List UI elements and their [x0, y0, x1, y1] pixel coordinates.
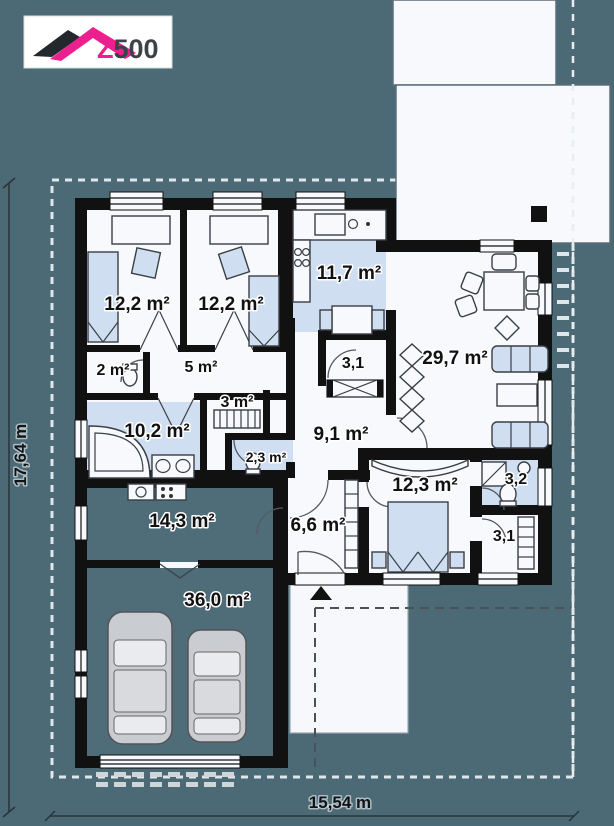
window-utility-west	[75, 506, 87, 540]
room-label-garage: 36,0 m²	[184, 590, 249, 611]
room-label-bedroom-3: 12,3 m²	[392, 475, 457, 496]
garage-door	[100, 755, 240, 768]
window-bedroom3	[383, 573, 440, 585]
room-label-wardrobe-small: 3 m²	[221, 394, 254, 411]
room-label-pantry: 3,1	[342, 355, 364, 372]
car-2	[188, 630, 246, 742]
window-top-1	[110, 192, 163, 210]
nightstand-1	[372, 552, 386, 568]
window-bathroom2	[538, 468, 552, 506]
dim-label-width: 15,54 m	[309, 793, 371, 812]
window-east-dining	[538, 283, 552, 315]
room-label-corridor: 9,1 m²	[314, 424, 369, 445]
roof-rect-upper	[393, 0, 556, 85]
chimney-square	[531, 206, 547, 222]
nightstand-2	[450, 552, 464, 568]
boiler-stove	[156, 484, 186, 500]
window-top-kitchen	[296, 192, 345, 210]
kitchen-chair-right	[372, 310, 384, 330]
kitchen-table	[332, 306, 372, 334]
window-living-top	[480, 240, 514, 252]
room-label-bathroom: 10,2 m²	[124, 421, 189, 442]
roof-rect-lower	[396, 85, 610, 243]
kitchen-sink	[315, 214, 345, 235]
room-label-wc: 2,3 m²	[246, 449, 287, 465]
desk-1	[112, 216, 170, 244]
room-label-utility: 14,3 m²	[149, 511, 214, 532]
chair-1	[132, 248, 161, 278]
floor-plan-canvas: 12,2 m² 12,2 m² 11,7 m² 3,1 29,7 m² 2 m²…	[0, 0, 614, 826]
shower	[482, 462, 506, 486]
window-garage-west-2	[75, 676, 87, 698]
room-label-hall: 5 m²	[185, 359, 218, 376]
kitchen-chair-left	[320, 310, 332, 330]
window-wardrobe2	[478, 573, 518, 585]
z500-logo: Z500	[24, 16, 172, 68]
room-label-bedroom-1: 12,2 m²	[104, 294, 169, 315]
wardrobe-rail	[214, 410, 260, 428]
room-label-wc-small: 2 m²	[97, 362, 130, 379]
window-bathroom-west	[75, 420, 87, 458]
room-label-entrance-hall: 6,6 m²	[291, 515, 346, 536]
room-label-bathroom-2: 3,2	[505, 471, 527, 488]
corridor-cabinet	[327, 380, 383, 397]
floor-plan-page: 12,2 m² 12,2 m² 11,7 m² 3,1 29,7 m² 2 m²…	[0, 0, 614, 826]
coffee-table	[497, 384, 537, 406]
bed-3	[388, 502, 448, 572]
double-sink	[152, 455, 194, 478]
window-top-2	[213, 192, 262, 210]
wardrobe2-ladder	[518, 517, 534, 569]
car-1	[108, 612, 172, 744]
dim-label-height: 17,64 m	[11, 424, 30, 486]
room-label-bedroom-2: 12,2 m²	[198, 294, 263, 315]
desk-2	[210, 216, 268, 244]
room-label-living: 29,7 m²	[422, 348, 487, 369]
room-label-kitchen: 11,7 m²	[317, 263, 381, 284]
washer	[128, 484, 154, 500]
logo-text: Z500	[97, 34, 159, 64]
window-garage-west-1	[75, 650, 87, 672]
hall-wardrobe	[345, 480, 358, 568]
sofa-1	[492, 346, 548, 372]
sofa-2	[492, 422, 548, 448]
room-label-wardrobe-2: 3,1	[493, 528, 515, 545]
